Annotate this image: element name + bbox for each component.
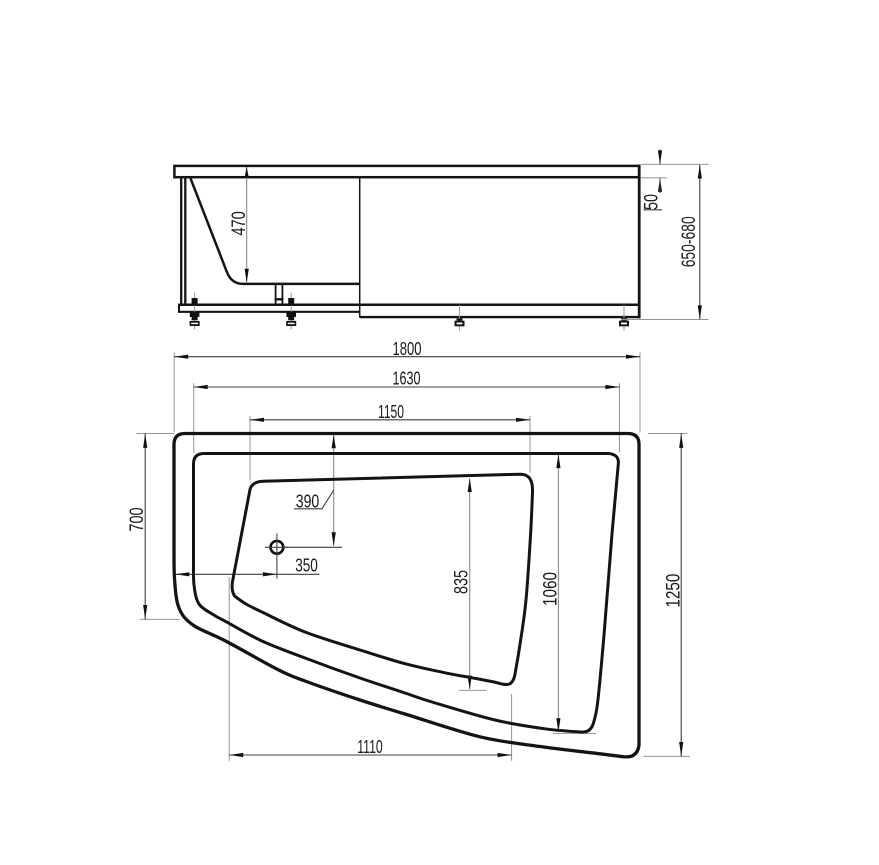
svg-text:1630: 1630: [393, 367, 421, 388]
svg-text:1110: 1110: [357, 736, 383, 757]
svg-text:1800: 1800: [393, 338, 422, 359]
svg-text:1060: 1060: [539, 572, 561, 606]
svg-text:1150: 1150: [378, 401, 404, 422]
svg-text:390: 390: [296, 490, 320, 511]
svg-text:700: 700: [126, 507, 148, 531]
svg-text:650-680: 650-680: [678, 216, 700, 267]
svg-text:350: 350: [295, 554, 318, 575]
svg-text:1250: 1250: [662, 573, 684, 607]
svg-text:470: 470: [228, 211, 250, 236]
svg-text:835: 835: [451, 570, 473, 594]
svg-text:50: 50: [640, 194, 662, 210]
